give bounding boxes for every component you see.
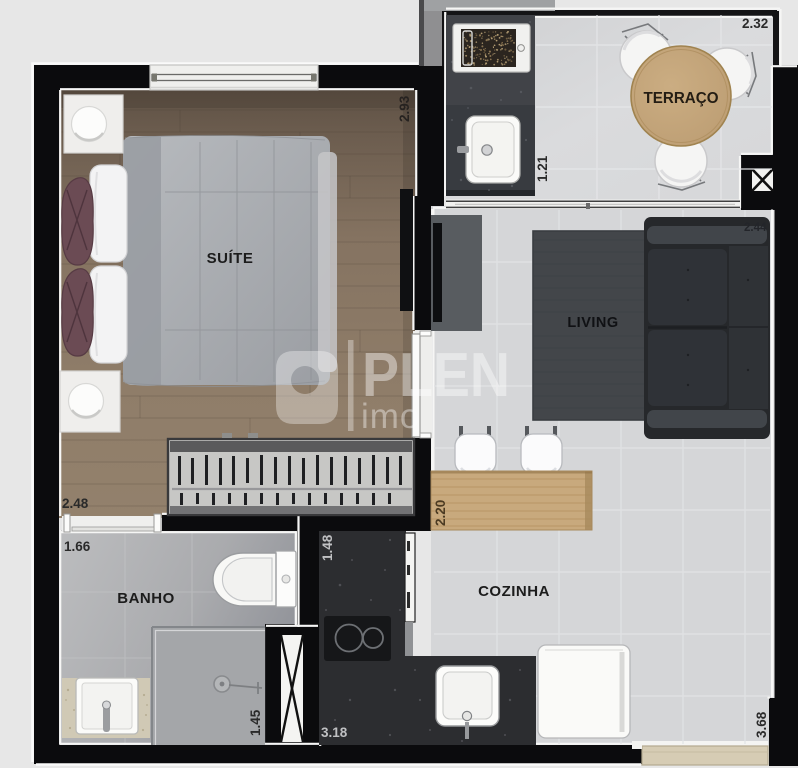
svg-text:COZINHA: COZINHA: [478, 583, 550, 600]
svg-text:2.48: 2.48: [62, 496, 89, 511]
svg-text:imo: imo: [361, 397, 420, 436]
svg-text:2.20: 2.20: [433, 500, 448, 526]
svg-text:BANHO: BANHO: [117, 590, 175, 607]
svg-text:1.21: 1.21: [535, 155, 550, 182]
svg-text:2.32: 2.32: [742, 16, 768, 31]
svg-text:LIVING: LIVING: [567, 315, 618, 331]
svg-text:3.68: 3.68: [754, 711, 769, 738]
svg-text:1.66: 1.66: [64, 539, 91, 554]
svg-text:2.93: 2.93: [397, 95, 412, 122]
svg-text:3.18: 3.18: [321, 725, 348, 740]
svg-text:1.45: 1.45: [248, 709, 263, 736]
svg-text:TERRAÇO: TERRAÇO: [644, 90, 719, 107]
svg-text:SUÍTE: SUÍTE: [207, 250, 254, 267]
svg-text:2.44: 2.44: [744, 222, 767, 234]
svg-text:1.48: 1.48: [320, 534, 335, 561]
